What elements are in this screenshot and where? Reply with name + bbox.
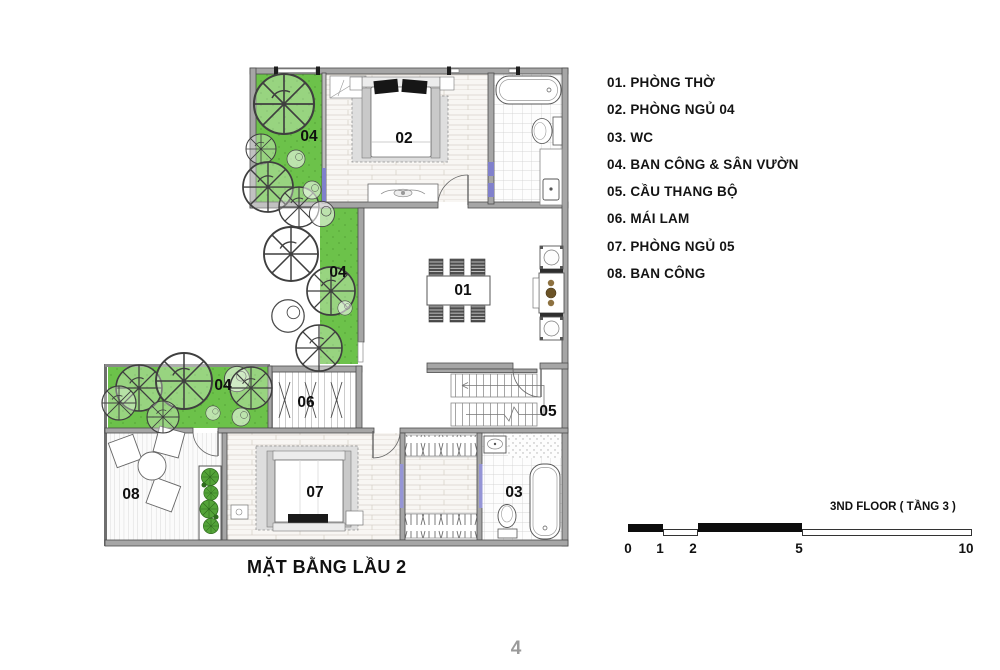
- label-stairs: 05: [539, 403, 557, 420]
- floor-plan-drawing: 04 02 04 01 04 06 05 08 07 03: [0, 0, 1000, 670]
- label-worship-room: 01: [454, 282, 472, 299]
- scale-bar-title: 3ND FLOOR ( TẦNG 3 ): [830, 501, 956, 513]
- legend-item: 03. WC: [607, 124, 799, 151]
- wardrobe-top: [405, 435, 477, 456]
- legend-item: 05. CẦU THANG BỘ: [607, 178, 799, 205]
- door-marker: [322, 168, 326, 202]
- stairs-05: [451, 374, 544, 426]
- wardrobe-bottom: [405, 514, 477, 538]
- label-garden-mid: 04: [329, 264, 347, 281]
- label-wc: 03: [505, 484, 523, 501]
- wc-03-counter-area: [508, 434, 562, 458]
- legend-item: 07. PHÒNG NGỦ 05: [607, 233, 799, 260]
- dresser-room02: [368, 184, 438, 202]
- scale-tick: 10: [958, 541, 973, 556]
- door-marker: [488, 162, 494, 176]
- scale-segment: [698, 523, 802, 532]
- legend-item: 08. BAN CÔNG: [607, 260, 799, 287]
- door-marker: [479, 464, 483, 508]
- legend-item: 06. MÁI LAM: [607, 205, 799, 232]
- legend-item: 01. PHÒNG THỜ: [607, 69, 799, 96]
- label-balcony-top: 04: [300, 128, 318, 145]
- page-number: 4: [511, 638, 522, 660]
- wardrobe-middle: [405, 457, 477, 513]
- door-marker: [488, 183, 494, 197]
- planter-strip: [199, 466, 221, 540]
- legend-panel: 01. PHÒNG THỜ 02. PHÒNG NGỦ 04 03. WC 04…: [607, 69, 799, 287]
- scale-segment: [802, 529, 972, 536]
- door-marker: [400, 464, 404, 508]
- label-bedroom-02: 02: [395, 130, 412, 147]
- plan-title: MẶT BẰNG LẦU 2: [247, 557, 407, 578]
- legend-item: 04. BAN CÔNG & SÂN VƯỜN: [607, 151, 799, 178]
- scale-tick: 0: [624, 541, 632, 556]
- label-balcony-08: 08: [122, 486, 140, 503]
- scale-segment: [663, 529, 698, 536]
- label-bedroom-07: 07: [306, 484, 323, 501]
- floor-plan-page: 04 02 04 01 04 06 05 08 07 03 01. PHÒNG …: [0, 0, 1000, 670]
- scale-tick: 1: [656, 541, 664, 556]
- legend-item: 02. PHÒNG NGỦ 04: [607, 96, 799, 123]
- scale-segment: [628, 524, 663, 532]
- label-mai-lam: 06: [297, 394, 315, 411]
- scale-tick: 2: [689, 541, 697, 556]
- scale-tick: 5: [795, 541, 803, 556]
- label-garden-bottom: 04: [214, 377, 232, 394]
